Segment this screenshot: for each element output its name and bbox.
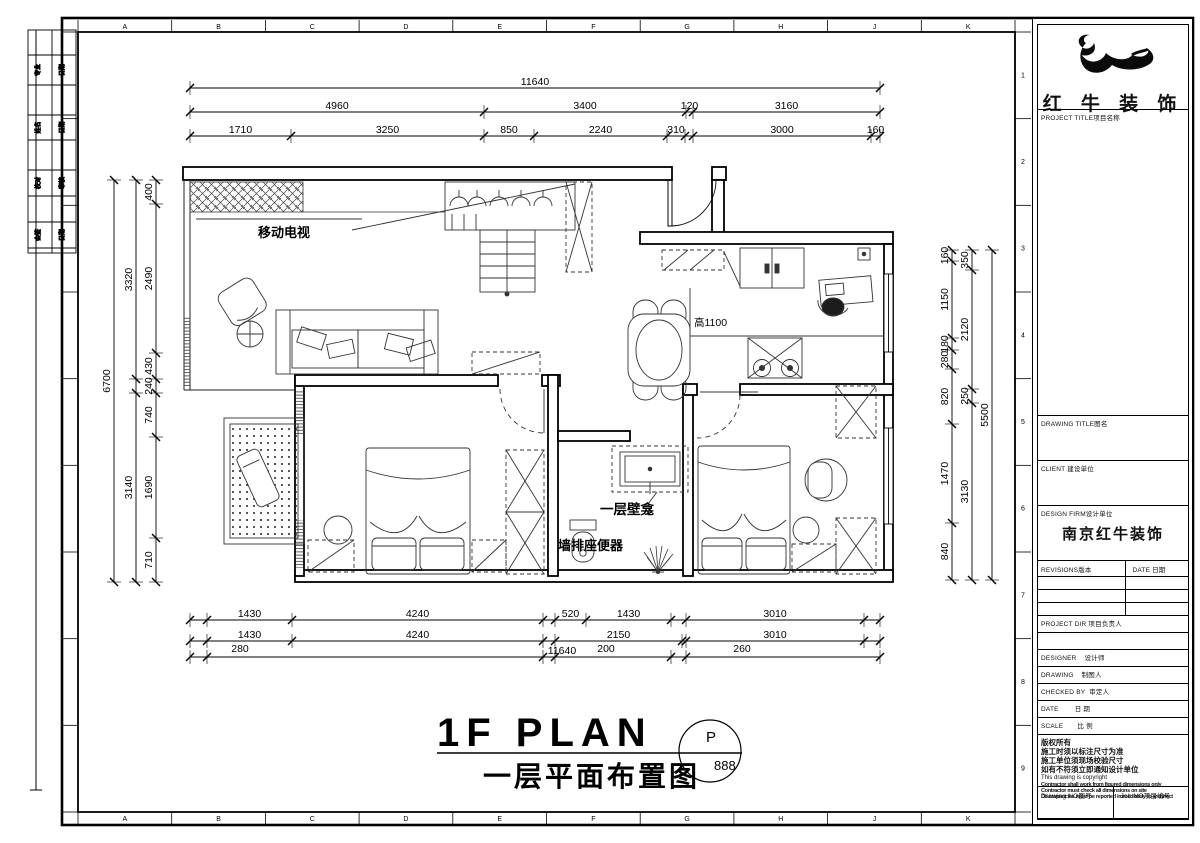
label-niche: 一层壁龛 (600, 501, 654, 517)
dim-label: 2120 (959, 318, 971, 342)
dim-label: 180 (939, 335, 951, 353)
copyright-zh: 版权所有 施工时须以标注尺寸为准 施工单位须现场校验尺寸 如有不符须立即通知设计… (1038, 735, 1188, 774)
title-en: 1F PLAN (437, 711, 653, 755)
sheet-frame (30, 18, 1193, 825)
drawing-person-label: DRAWING 制图人 (1038, 667, 1188, 679)
label-counter-height: 高1100 (694, 316, 727, 329)
tv-wall (190, 182, 445, 219)
title-bubble-top: P (706, 729, 716, 746)
label-toilet: 墙排座便器 (558, 538, 624, 553)
row-drawing-no: Drawing NO图号 Job NO项目编号 (1038, 786, 1188, 819)
dim-chain: 496034001203160 (186, 100, 884, 119)
grid-number: 1 (1021, 72, 1025, 79)
dim-label: 3130 (959, 480, 971, 504)
dim-label: 3400 (573, 100, 597, 112)
row-scale: SCALE 比 例 (1038, 717, 1188, 734)
project-dir-label: PROJECT DIR 项目负责人 (1038, 616, 1188, 628)
sign-strip-label: 会签 (34, 229, 42, 241)
grid-letter: E (497, 816, 502, 823)
grid-letter: H (778, 816, 783, 823)
drawing-canvas: 专业日期姓名日期校对审核会签日期 AABBCCDDEEFFGGHHJJKK123… (0, 0, 1200, 843)
grid-number: 4 (1021, 332, 1025, 339)
client-label: CLIENT 建设单位 (1038, 461, 1188, 473)
checked-by-label: CHECKED BY 审定人 (1038, 684, 1188, 696)
grid-number: 6 (1021, 506, 1025, 513)
grid-letter: G (684, 24, 689, 31)
dim-label: 260 (733, 643, 751, 655)
row-project: PROJECT TITLE项目名称 (1038, 109, 1188, 415)
dim-label: 1690 (143, 476, 155, 500)
dim-label: 840 (939, 543, 951, 561)
dim-label: 310 (667, 124, 685, 136)
dim-label: 160 (867, 124, 885, 136)
scale-label: SCALE 比 例 (1038, 718, 1188, 730)
dim-label: 200 (597, 643, 615, 655)
bedroom-2 (697, 386, 876, 574)
row-project-dir-empty (1038, 632, 1188, 649)
dim-label: 4960 (325, 100, 349, 112)
sign-strip-label: 校对 (34, 177, 42, 189)
dim-label: 280 (231, 643, 249, 655)
dim-label: 1430 (617, 608, 641, 620)
row-designer: DESIGNER 设计师 (1038, 649, 1188, 666)
design-firm-value: 南京红牛装饰 (1038, 523, 1188, 544)
dim-label: 6700 (101, 369, 113, 393)
dim-label: 1710 (229, 124, 253, 136)
drawing-title-label: DRAWING TITLE图名 (1038, 416, 1188, 428)
dim-label: 250 (959, 387, 971, 405)
dim-label: 2490 (143, 267, 155, 291)
sign-strip-label: 姓名 (34, 121, 42, 133)
revisions-label: REVISIONS版本 (1038, 562, 1125, 574)
grid-letter: K (966, 24, 971, 31)
dim-label: 11640 (548, 645, 577, 657)
dim-chain: 33203140 (123, 176, 143, 586)
kitchen (662, 248, 884, 378)
label-tv: 移动电视 (258, 225, 310, 240)
date-label: DATE 日 期 (1038, 701, 1188, 713)
sign-strip-label: 日期 (58, 121, 66, 133)
sofa-group (215, 275, 438, 374)
job-no-label: Job NO项目编号 (1117, 788, 1170, 800)
grid-letter: B (216, 24, 221, 31)
row-copyright: 版权所有 施工时须以标注尺寸为准 施工单位须现场校验尺寸 如有不符须立即通知设计… (1038, 734, 1188, 786)
grid-number: 2 (1021, 159, 1025, 166)
row-drawing-person: DRAWING 制图人 (1038, 666, 1188, 683)
dim-label: 240 (143, 377, 155, 395)
dim-label: 430 (143, 357, 155, 375)
grid-letter: C (310, 816, 315, 823)
row-client: CLIENT 建设单位 (1038, 460, 1188, 505)
grid-letter: F (591, 816, 595, 823)
dim-label: 4240 (406, 608, 430, 620)
desk-workstation (818, 276, 873, 316)
title-block: 红 牛 装 饰 PROJECT TITLE项目名称 DRAWING TITLE图… (1032, 18, 1193, 825)
sign-strip-label: 专业 (34, 64, 42, 76)
dim-label: 5500 (979, 403, 991, 427)
grid-letter: A (123, 816, 128, 823)
dining-set (628, 300, 690, 400)
grid-number: 3 (1021, 246, 1025, 253)
stairs-closet (352, 182, 592, 296)
drawing-title: 1F PLAN P 888 一层平面布置图 (437, 711, 742, 792)
dim-label: 1470 (939, 462, 951, 486)
sign-off-strip: 专业日期姓名日期校对审核会签日期 (28, 30, 76, 253)
dim-label: 740 (143, 406, 155, 424)
dim-label: 160 (939, 247, 951, 265)
grid-number: 5 (1021, 419, 1025, 426)
dim-label: 4240 (406, 629, 430, 641)
sign-strip-label: 日期 (58, 64, 66, 76)
dim-label: 520 (562, 608, 580, 620)
title-zh: 一层平面布置图 (483, 761, 700, 792)
dim-label: 3010 (763, 629, 787, 641)
design-firm-label: DESIGN FIRM设计单位 (1038, 506, 1188, 518)
dim-label: 3000 (770, 124, 794, 136)
dim-chain: 35021202503130 (959, 246, 979, 584)
dim-chain (186, 650, 884, 664)
revision-row-empty (1038, 589, 1188, 602)
dim-label: 3250 (376, 124, 400, 136)
dim-label: 820 (939, 388, 951, 406)
revision-row-empty (1038, 602, 1188, 615)
grid-letter: D (403, 816, 408, 823)
dim-label: 350 (959, 251, 971, 269)
dim-label: 1430 (238, 608, 262, 620)
grid-letter: J (873, 24, 877, 31)
entry-door (668, 180, 716, 226)
dim-label: 2150 (607, 629, 631, 641)
dim-label: 1430 (238, 629, 262, 641)
dim-label: 710 (143, 551, 155, 569)
grid-number: 9 (1021, 766, 1025, 773)
row-design-firm: DESIGN FIRM设计单位 南京红牛装饰 (1038, 505, 1188, 560)
dim-label: 3010 (763, 608, 787, 620)
drawing-no-label: Drawing NO图号 (1038, 788, 1113, 800)
grid-letter: F (591, 24, 595, 31)
dim-label: 3140 (123, 476, 135, 500)
sign-strip-label: 日期 (58, 229, 66, 241)
dim-chain: 1430424052014303010 (186, 608, 884, 627)
dim-label: 1150 (939, 288, 951, 311)
row-revisions: REVISIONS版本 DATE 日期 (1038, 560, 1188, 576)
row-date: DATE 日 期 (1038, 700, 1188, 717)
grid-letter: C (310, 24, 315, 31)
designer-label: DESIGNER 设计师 (1038, 650, 1188, 662)
grid-letter: A (123, 24, 128, 31)
grid-letter: G (684, 816, 689, 823)
dim-label: 11640 (521, 76, 550, 88)
dim-label: 280 (939, 351, 951, 369)
grid-number: 7 (1021, 592, 1025, 599)
dim-label: 3320 (123, 268, 135, 292)
grid-letter: B (216, 816, 221, 823)
row-project-dir: PROJECT DIR 项目负责人 (1038, 615, 1188, 632)
floor-plan: 移动电视 高1100 一层壁龛 墙排座便器 (183, 167, 893, 582)
grid-letter: K (966, 816, 971, 823)
grid-number: 8 (1021, 679, 1025, 686)
grid-letter: H (778, 24, 783, 31)
terrace (224, 418, 304, 544)
revision-row-empty (1038, 576, 1188, 589)
dim-chain: 1430424021503010 (186, 629, 884, 648)
row-checked-by: CHECKED BY 审定人 (1038, 683, 1188, 700)
title-bubble-bottom: 888 (714, 758, 736, 773)
grid-letter: J (873, 816, 877, 823)
revisions-date-label: DATE 日期 (1129, 562, 1165, 574)
dim-label: 3160 (775, 100, 799, 112)
cad-sheet: 专业日期姓名日期校对审核会签日期 AABBCCDDEEFFGGHHJJKK123… (0, 0, 1200, 843)
brand-logo (1068, 31, 1158, 87)
dim-chain: 11640 (186, 76, 884, 95)
row-drawing-title: DRAWING TITLE图名 (1038, 415, 1188, 460)
copyright-en-line: This drawing is copyright (1038, 774, 1188, 782)
dim-label: 120 (681, 100, 699, 112)
dim-chain: 1710325085022403103000160 (186, 124, 884, 143)
dim-chain: 40024904302407401690710 (143, 176, 163, 586)
sign-strip-label: 审核 (58, 177, 66, 189)
dim-label: 400 (143, 183, 155, 201)
grid-letter: D (403, 24, 408, 31)
title-block-inner: 红 牛 装 饰 PROJECT TITLE项目名称 DRAWING TITLE图… (1037, 24, 1189, 820)
project-label: PROJECT TITLE项目名称 (1038, 110, 1188, 122)
grid-letter: E (497, 24, 502, 31)
dim-chain: 5500 (979, 246, 999, 584)
dim-chain: 6700 (101, 176, 121, 586)
dim-chain: 16011501802808201470840 (939, 246, 959, 584)
dim-label: 850 (500, 124, 518, 136)
dim-label: 2240 (589, 124, 613, 136)
